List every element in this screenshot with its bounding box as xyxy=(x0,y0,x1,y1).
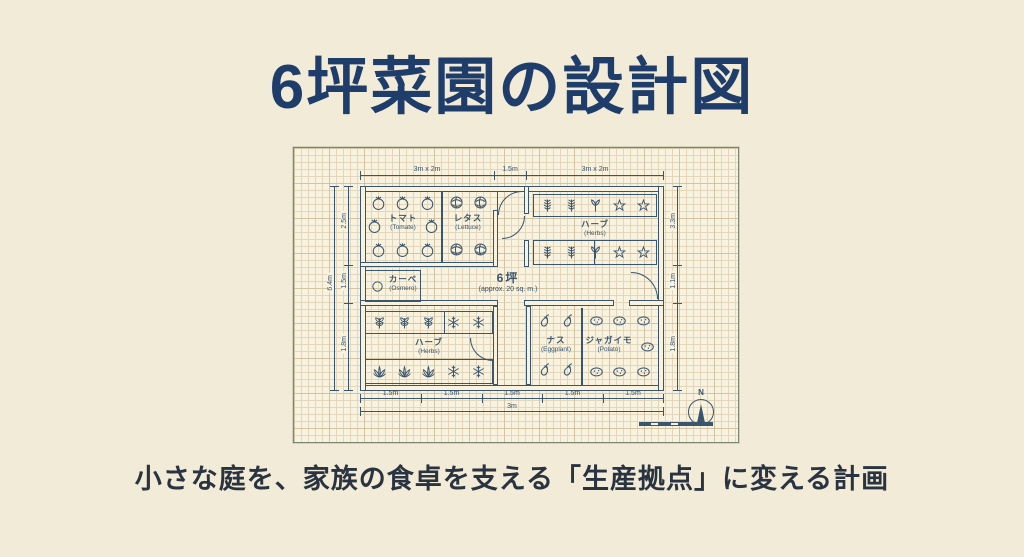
dim-tick xyxy=(673,303,682,304)
lotus-icon xyxy=(371,363,388,380)
fern-icon xyxy=(539,197,556,214)
dim-tick xyxy=(663,394,664,403)
potato-icon xyxy=(588,363,605,380)
storage-room-label-en: (Osmero) xyxy=(386,285,420,292)
lettuce-icon-row-1 xyxy=(444,193,492,212)
lotus-icon xyxy=(420,363,437,380)
storage-icon-row xyxy=(368,278,386,294)
dim-label-bottom-2: 1.5m xyxy=(421,390,482,397)
dim-tick xyxy=(673,265,682,266)
dim-tick xyxy=(330,186,339,187)
potato-icon xyxy=(635,363,652,380)
star-icon xyxy=(611,197,628,214)
dim-label-top-2: 1.5m xyxy=(494,166,526,173)
holly-icon xyxy=(587,197,604,214)
lettuce-icon xyxy=(448,241,465,258)
dim-line-left-inner xyxy=(348,186,349,391)
area-label-jp: 6坪 xyxy=(448,272,568,286)
blueprint-panel: カーベ (Osmero) トマト (Tomate) レタス (Lettuce) … xyxy=(293,147,739,443)
page: 6坪菜園の設計図 カーベ (Osmero) xyxy=(0,0,1024,557)
basil-icon xyxy=(396,314,413,331)
tomato-room-label: トマト (Tomate) xyxy=(366,214,440,231)
dim-label-bottom-total: 3m xyxy=(360,403,664,410)
potato-icon-row-2 xyxy=(585,362,655,381)
tomato-room-label-jp: トマト xyxy=(366,214,440,224)
lotus-icon xyxy=(396,363,413,380)
herbs-bottom-room-label-en: (Herbs) xyxy=(365,348,493,355)
tomato-room-label-en: (Tomate) xyxy=(366,224,440,231)
lettuce-room-label: レタス (Lettuce) xyxy=(443,214,493,231)
dim-tick xyxy=(344,186,353,187)
eggplant-icon xyxy=(559,361,576,378)
eggplant-icon-row-1 xyxy=(533,311,579,330)
eggplant-icon xyxy=(536,312,553,329)
herbs-bottom-icon-row-2 xyxy=(367,362,491,381)
scale-segment xyxy=(639,422,650,426)
wall-topleft-room-bottom xyxy=(360,262,496,267)
dim-label-bottom-4: 1.5m xyxy=(542,390,603,397)
fern-icon xyxy=(563,244,580,261)
door-arc-corridor-top xyxy=(498,191,522,215)
compass-north-label: N xyxy=(688,388,714,397)
scale-bar-icon xyxy=(639,420,713,426)
eggplant-room-label-jp: ナス xyxy=(531,336,581,346)
wall-top xyxy=(360,186,664,192)
lettuce-icon xyxy=(448,194,465,211)
dim-line-left-outer xyxy=(334,186,335,391)
scale-segment xyxy=(650,422,659,426)
wall-corridor-left xyxy=(493,210,498,267)
tomato-icon-row-1 xyxy=(366,193,440,212)
potato-icon xyxy=(611,312,628,329)
fern-icon xyxy=(539,244,556,261)
herbs-top-room-label: ハーブ (Herbs) xyxy=(533,220,657,237)
basil-icon xyxy=(371,314,388,331)
herbs-bottom-icon-row-1 xyxy=(367,313,491,332)
dim-label-left-3: 1.8m xyxy=(341,334,348,354)
dim-label-left-1: 2.5m xyxy=(341,211,348,231)
star-icon xyxy=(635,197,652,214)
dim-tick xyxy=(673,390,682,391)
dim-label-top-1: 3m x 2m xyxy=(360,166,494,173)
dim-tick xyxy=(330,390,339,391)
eggplant-icon xyxy=(559,312,576,329)
potato-icon xyxy=(635,312,652,329)
snow-icon xyxy=(470,314,487,331)
tomato-icon xyxy=(394,194,411,211)
dim-label-left-outer: 6.4m xyxy=(327,273,334,293)
dim-label-right-3: 1.8m xyxy=(670,334,677,354)
tomato-icon xyxy=(370,194,387,211)
snow-icon xyxy=(470,363,487,380)
dim-label-top-3: 3m x 2m xyxy=(526,166,664,173)
dim-tick xyxy=(344,265,353,266)
potato-icon xyxy=(588,312,605,329)
lettuce-room-label-jp: レタス xyxy=(443,214,493,224)
scale-segment xyxy=(670,422,679,426)
snow-icon xyxy=(445,314,462,331)
potato-icon-row-1 xyxy=(585,311,655,330)
storage-room-label: カーベ (Osmero) xyxy=(386,275,420,292)
dim-label-right-1: 3.3m xyxy=(670,211,677,231)
dim-line-bottom-1 xyxy=(360,398,664,399)
door-leaf-corridor-top xyxy=(497,191,498,215)
eggplant-room-label-en: (Eggplant) xyxy=(531,346,581,353)
potato-icon-mid xyxy=(638,337,656,355)
tomato-icon xyxy=(419,194,436,211)
potato-icon xyxy=(639,338,656,355)
herbs-top-room-label-en: (Herbs) xyxy=(533,230,657,237)
eggplant-room-label: ナス (Eggplant) xyxy=(531,336,581,353)
dim-line-top xyxy=(360,175,664,176)
potato-room-label-jp: ジャガイモ xyxy=(581,336,637,346)
potato-room-label: ジャガイモ (Potato) xyxy=(581,336,637,353)
wall-corridor-right-lower xyxy=(524,240,529,267)
area-label-en: (approx. 20 sq. m.) xyxy=(448,286,568,294)
storage-room-label-jp: カーベ xyxy=(386,275,420,285)
star-icon xyxy=(635,244,652,261)
scale-segment xyxy=(679,422,713,426)
dim-label-bottom-3: 1.5m xyxy=(482,390,542,397)
potato-icon xyxy=(611,363,628,380)
wall-right xyxy=(658,186,664,391)
potato-room-label-en: (Potato) xyxy=(581,346,637,353)
basil-icon xyxy=(420,314,437,331)
dim-label-left-2: 1.5m xyxy=(341,271,348,291)
herbs-top-icon-row-2 xyxy=(535,243,655,262)
snow-icon xyxy=(445,363,462,380)
page-title: 6坪菜園の設計図 xyxy=(0,36,1024,126)
dim-line-right xyxy=(677,186,678,391)
lettuce-icon-row-3 xyxy=(444,240,492,259)
tomato-icon xyxy=(394,241,411,258)
dim-label-bottom-1: 1.5m xyxy=(360,390,421,397)
dim-tick xyxy=(344,390,353,391)
herbs-bottom-room-label: ハーブ (Herbs) xyxy=(365,338,493,355)
dim-line-bottom-total xyxy=(360,411,664,412)
lettuce-room-label-en: (Lettuce) xyxy=(443,224,493,231)
lettuce-icon xyxy=(472,194,489,211)
wall-bottomleft-room-right xyxy=(493,306,498,385)
dim-tick xyxy=(344,303,353,304)
eggplant-icon-row-2 xyxy=(533,360,579,379)
dim-label-bottom-5: 1.5m xyxy=(603,390,663,397)
herbs-top-icon-row-1 xyxy=(535,196,655,215)
herbs-bottom-room-label-jp: ハーブ xyxy=(365,338,493,348)
tomato-icon xyxy=(419,241,436,258)
star-icon xyxy=(611,244,628,261)
holly-icon xyxy=(587,244,604,261)
circle-icon xyxy=(369,278,386,295)
area-label: 6坪 (approx. 20 sq. m.) xyxy=(448,272,568,294)
lettuce-icon xyxy=(472,241,489,258)
dim-label-right-2: 1.1m xyxy=(670,271,677,291)
tomato-icon-row-3 xyxy=(366,240,440,259)
door-arc-right-wing xyxy=(631,272,658,299)
eggplant-icon xyxy=(536,361,553,378)
wall-middle-right xyxy=(629,300,664,306)
scale-segment xyxy=(659,422,670,426)
wall-middle-center xyxy=(524,300,614,306)
fern-icon xyxy=(563,197,580,214)
caption: 小さな庭を、家族の食卓を支える「生産拠点」に変える計画 xyxy=(0,457,1024,496)
herbs-top-room-label-jp: ハーブ xyxy=(533,220,657,230)
wall-corridor-right-upper xyxy=(524,186,529,214)
door-arc-herb-entry xyxy=(502,216,525,239)
tomato-icon xyxy=(370,241,387,258)
dim-tick xyxy=(673,186,682,187)
